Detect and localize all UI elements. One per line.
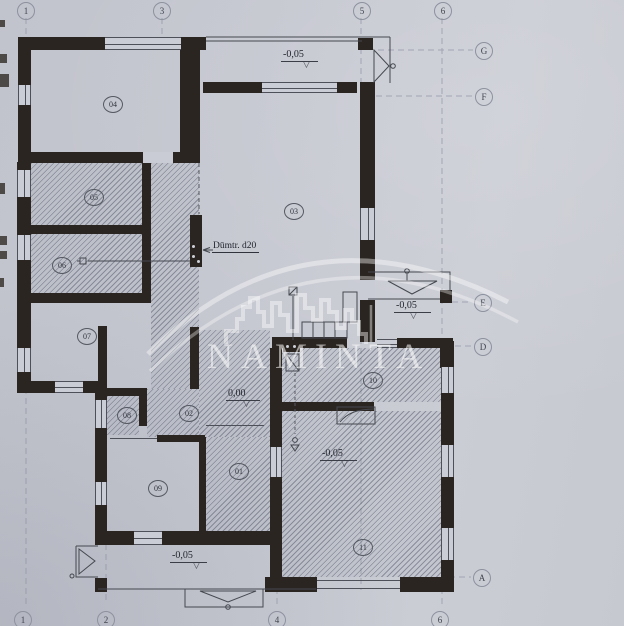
wall-column bbox=[358, 38, 373, 50]
entry-arrow-icon bbox=[374, 50, 389, 82]
grid-bubble-1-top: 1 bbox=[17, 2, 35, 20]
wall bbox=[282, 402, 374, 411]
level-triangle-icon: ▽ bbox=[303, 61, 310, 70]
window bbox=[17, 235, 31, 260]
photo-artifact bbox=[0, 251, 7, 259]
room-tag-05: 05 bbox=[84, 189, 104, 206]
wall bbox=[360, 300, 375, 342]
window bbox=[441, 445, 454, 477]
wall bbox=[31, 225, 143, 234]
door-opening bbox=[360, 280, 375, 300]
wall bbox=[31, 293, 143, 303]
window bbox=[105, 37, 181, 50]
opening-line bbox=[206, 425, 264, 426]
grid-bubble-E: E bbox=[474, 294, 492, 312]
level-mark-south: -0,05 bbox=[170, 550, 207, 563]
entry-point-icon bbox=[391, 64, 396, 69]
window bbox=[441, 367, 454, 393]
window bbox=[18, 85, 31, 105]
entry-arrow-icon bbox=[388, 281, 437, 294]
flue-circle-icon bbox=[191, 254, 196, 259]
room-tag-11: 11 bbox=[353, 539, 373, 556]
door-line bbox=[110, 438, 157, 439]
wall bbox=[190, 327, 199, 389]
window bbox=[360, 208, 375, 240]
room-tag-01: 01 bbox=[229, 463, 249, 480]
window bbox=[95, 482, 107, 505]
wall bbox=[180, 50, 200, 163]
wall bbox=[199, 437, 206, 533]
wall bbox=[142, 152, 151, 303]
grid-bubble-G: G bbox=[475, 42, 493, 60]
grid-bubble-F: F bbox=[475, 88, 493, 106]
flue-circle-icon bbox=[196, 259, 201, 264]
level-triangle-icon: ▽ bbox=[410, 312, 417, 321]
grid-bubble-3-top: 3 bbox=[153, 2, 171, 20]
wall bbox=[265, 577, 317, 592]
window bbox=[55, 381, 83, 393]
wall bbox=[95, 578, 107, 592]
room-tag-07: 07 bbox=[77, 328, 97, 345]
window bbox=[441, 528, 454, 560]
wall bbox=[440, 290, 452, 303]
wall bbox=[397, 338, 442, 348]
entry-point-icon bbox=[226, 605, 231, 610]
grid-bubble-6-bottom: 6 bbox=[431, 611, 449, 626]
wall bbox=[95, 531, 270, 545]
room-tag-10: 10 bbox=[363, 372, 383, 389]
photo-artifact bbox=[0, 236, 7, 245]
room-06-floor-hatch bbox=[31, 234, 142, 293]
wall bbox=[360, 240, 375, 280]
room-01-floor-hatch bbox=[206, 437, 270, 532]
east-porch-outline bbox=[368, 272, 450, 299]
entry-point-icon bbox=[70, 574, 74, 578]
window bbox=[17, 348, 31, 372]
grid-bubble-4-bottom: 4 bbox=[268, 611, 286, 626]
room-tag-06: 06 bbox=[52, 257, 72, 274]
wall bbox=[400, 577, 448, 592]
level-triangle-icon: ▽ bbox=[193, 562, 200, 571]
grid-bubble-D: D bbox=[474, 338, 492, 356]
grid-bubble-A: A bbox=[473, 569, 491, 587]
south-entry-outline bbox=[185, 589, 263, 607]
photo-artifact bbox=[0, 183, 5, 194]
level-triangle-icon: ▽ bbox=[341, 460, 348, 469]
window bbox=[134, 531, 162, 545]
stairs bbox=[302, 322, 347, 338]
wall bbox=[139, 396, 147, 426]
window bbox=[262, 82, 337, 93]
level-mark-room11: -0,05 bbox=[320, 448, 357, 461]
grid-bubble-2-bottom: 2 bbox=[97, 611, 115, 626]
vent-stack-symbol bbox=[289, 287, 297, 340]
grid-bubble-1-bottom: 1 bbox=[14, 611, 32, 626]
stairs-landing bbox=[343, 292, 357, 322]
room-tag-09: 09 bbox=[148, 480, 168, 497]
door-opening-lined bbox=[270, 447, 282, 477]
level-mark-north: -0,05 bbox=[281, 49, 318, 62]
photo-artifact bbox=[0, 278, 4, 287]
flue-circle-icon bbox=[292, 344, 297, 349]
window bbox=[17, 170, 31, 197]
room-10-floor-hatch bbox=[282, 348, 441, 402]
room-tag-08: 08 bbox=[117, 407, 137, 424]
room-tag-04: 04 bbox=[103, 96, 123, 113]
grid-bubble-5-top: 5 bbox=[353, 2, 371, 20]
level-triangle-icon: ▽ bbox=[243, 400, 250, 409]
south-porch-outline bbox=[76, 546, 98, 577]
photo-artifact bbox=[0, 54, 7, 63]
window bbox=[377, 339, 397, 348]
grid-bubble-6-top: 6 bbox=[434, 2, 452, 20]
photo-artifact bbox=[0, 74, 9, 87]
wall bbox=[98, 326, 107, 393]
room-tag-03: 03 bbox=[284, 203, 304, 220]
wall bbox=[103, 388, 147, 396]
chimney-label: Dūmtr. d20 bbox=[212, 241, 259, 253]
window bbox=[95, 400, 107, 428]
entry-arrow-icon bbox=[79, 549, 95, 574]
entry-point-icon bbox=[405, 269, 410, 274]
door-opening bbox=[143, 152, 173, 163]
window-sill-line bbox=[317, 588, 400, 589]
hall-02-floor-hatch bbox=[199, 330, 270, 437]
photo-artifact bbox=[0, 20, 5, 27]
room-tag-02: 02 bbox=[179, 405, 199, 422]
floor-plan-photo: 1 3 5 6 1 2 4 6 G F E D A 04 05 06 07 03… bbox=[0, 0, 624, 626]
flue-circle-icon bbox=[191, 244, 196, 249]
window-sill-line bbox=[317, 580, 400, 581]
entry-arrow-icon bbox=[200, 591, 256, 602]
wall bbox=[360, 82, 375, 208]
wall bbox=[157, 435, 205, 442]
flue-circle-icon bbox=[285, 344, 290, 349]
